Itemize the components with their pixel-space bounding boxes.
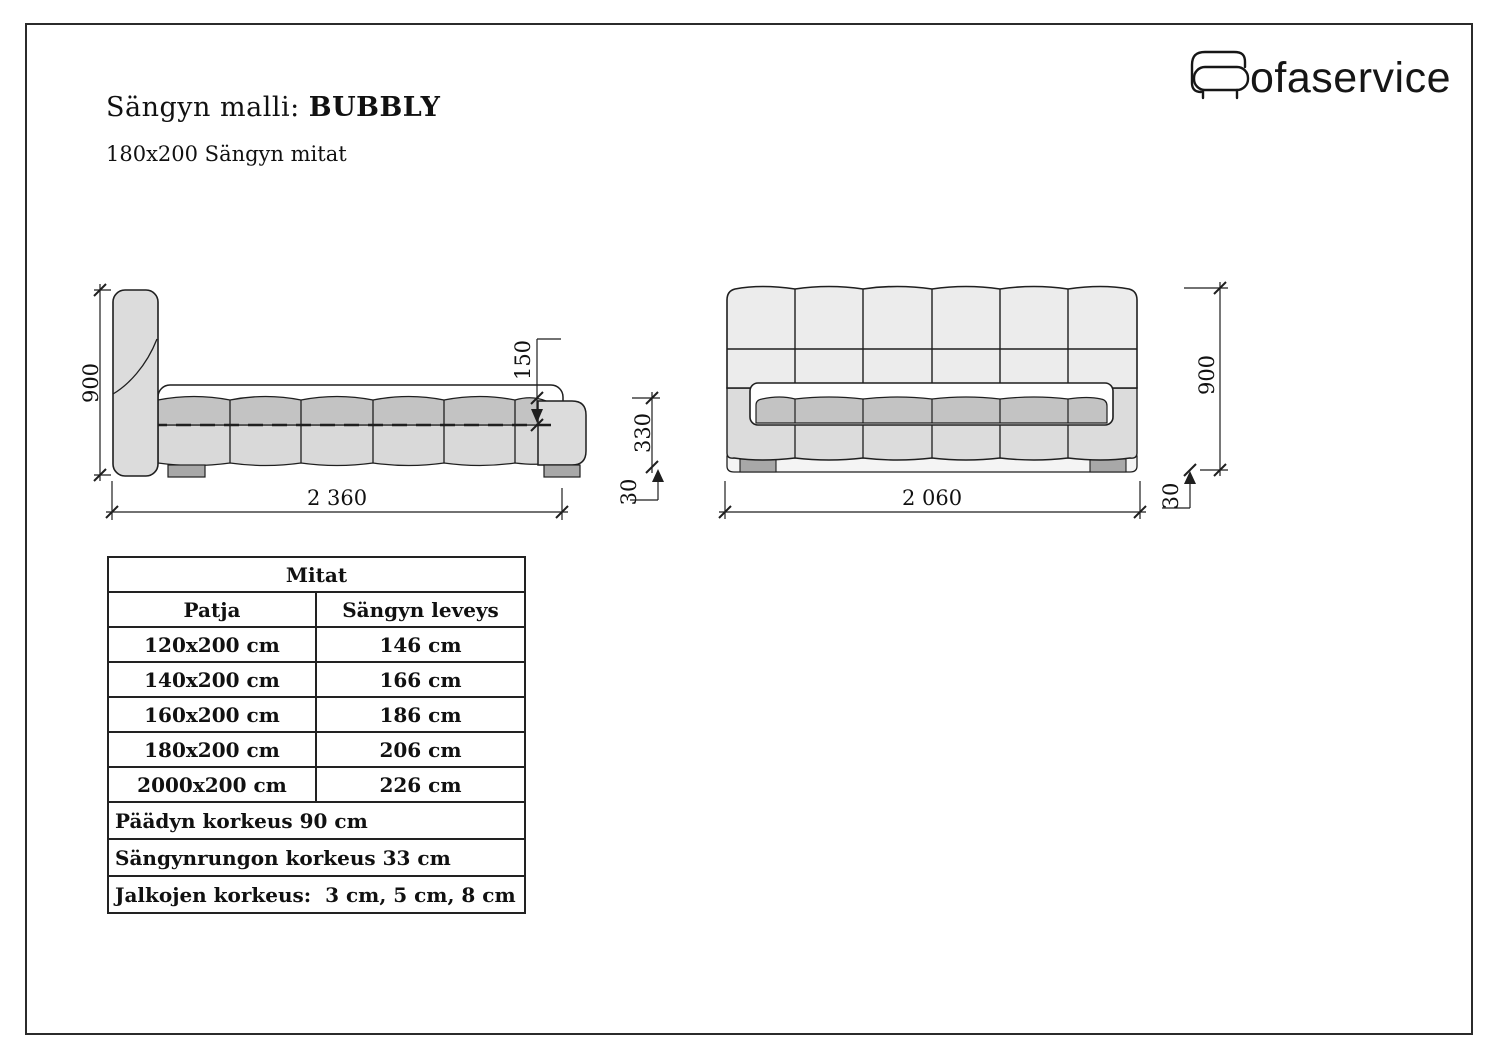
table-title-row: Mitat	[108, 557, 525, 592]
side-dim-height: 900	[80, 284, 111, 481]
logo-wordmark: ofaservice	[1250, 57, 1451, 100]
side-dim-height-label: 900	[80, 363, 103, 403]
side-dim-mattress-label: 150	[511, 340, 535, 380]
sofa-s-logo-icon	[1188, 44, 1254, 108]
cell-leveys: 186 cm	[316, 697, 525, 732]
front-dim-leg-label: 30	[1159, 483, 1183, 510]
cell-patja: 180x200 cm	[108, 732, 316, 767]
table-row: 140x200 cm 166 cm	[108, 662, 525, 697]
col-header-leveys: Sängyn leveys	[316, 592, 525, 627]
brand-logo: ofaservice	[1188, 44, 1451, 108]
side-view-drawing: 900 150 330 30 2 360	[80, 281, 690, 526]
front-dim-width: 2 060	[719, 481, 1146, 519]
front-dim-width-label: 2 060	[902, 486, 962, 510]
side-dim-leg: 30	[617, 469, 664, 505]
side-bed-outline	[113, 290, 586, 477]
page-subtitle: 180x200 Sängyn mitat	[106, 142, 347, 166]
table-row: 2000x200 cm 226 cm	[108, 767, 525, 802]
dimensions-table: Mitat Patja Sängyn leveys 120x200 cm 146…	[107, 556, 526, 914]
table-note-row: Jalkojen korkeus: 3 cm, 5 cm, 8 cm	[108, 876, 525, 913]
table-note-row: Sängynrungon korkeus 33 cm	[108, 839, 525, 876]
cell-leveys: 206 cm	[316, 732, 525, 767]
cell-leveys: 226 cm	[316, 767, 525, 802]
front-bed-outline	[727, 287, 1137, 473]
front-dim-leg: 30	[1159, 464, 1196, 509]
table-note-row: Päädyn korkeus 90 cm	[108, 802, 525, 839]
table-row: 120x200 cm 146 cm	[108, 627, 525, 662]
cell-leveys: 146 cm	[316, 627, 525, 662]
cell-patja: 2000x200 cm	[108, 767, 316, 802]
side-dim-length-label: 2 360	[307, 486, 367, 510]
side-dim-leg-label: 30	[617, 479, 641, 506]
side-dim-frame: 330	[631, 392, 660, 473]
model-name: BUBBLY	[309, 92, 441, 123]
cell-leveys: 166 cm	[316, 662, 525, 697]
side-dim-frame-label: 330	[631, 413, 655, 453]
cell-patja: 160x200 cm	[108, 697, 316, 732]
front-view-drawing: 900 30 2 060	[700, 270, 1250, 520]
table-title: Mitat	[108, 557, 525, 592]
page-title: Sängyn malli: BUBBLY	[106, 92, 440, 123]
table-row: 160x200 cm 186 cm	[108, 697, 525, 732]
model-label: Sängyn malli:	[106, 92, 300, 123]
table-row: 180x200 cm 206 cm	[108, 732, 525, 767]
table-header-row: Patja Sängyn leveys	[108, 592, 525, 627]
note-headboard-height: Päädyn korkeus 90 cm	[108, 802, 525, 839]
spec-sheet-page: { "header": { "title_label": "Sängyn mal…	[0, 0, 1497, 1058]
col-header-patja: Patja	[108, 592, 316, 627]
side-dim-length: 2 360	[106, 481, 568, 520]
note-leg-heights: Jalkojen korkeus: 3 cm, 5 cm, 8 cm	[108, 876, 525, 913]
front-dim-height: 900	[1184, 282, 1228, 476]
note-frame-height: Sängynrungon korkeus 33 cm	[108, 839, 525, 876]
front-dim-height-label: 900	[1195, 355, 1219, 395]
cell-patja: 120x200 cm	[108, 627, 316, 662]
cell-patja: 140x200 cm	[108, 662, 316, 697]
